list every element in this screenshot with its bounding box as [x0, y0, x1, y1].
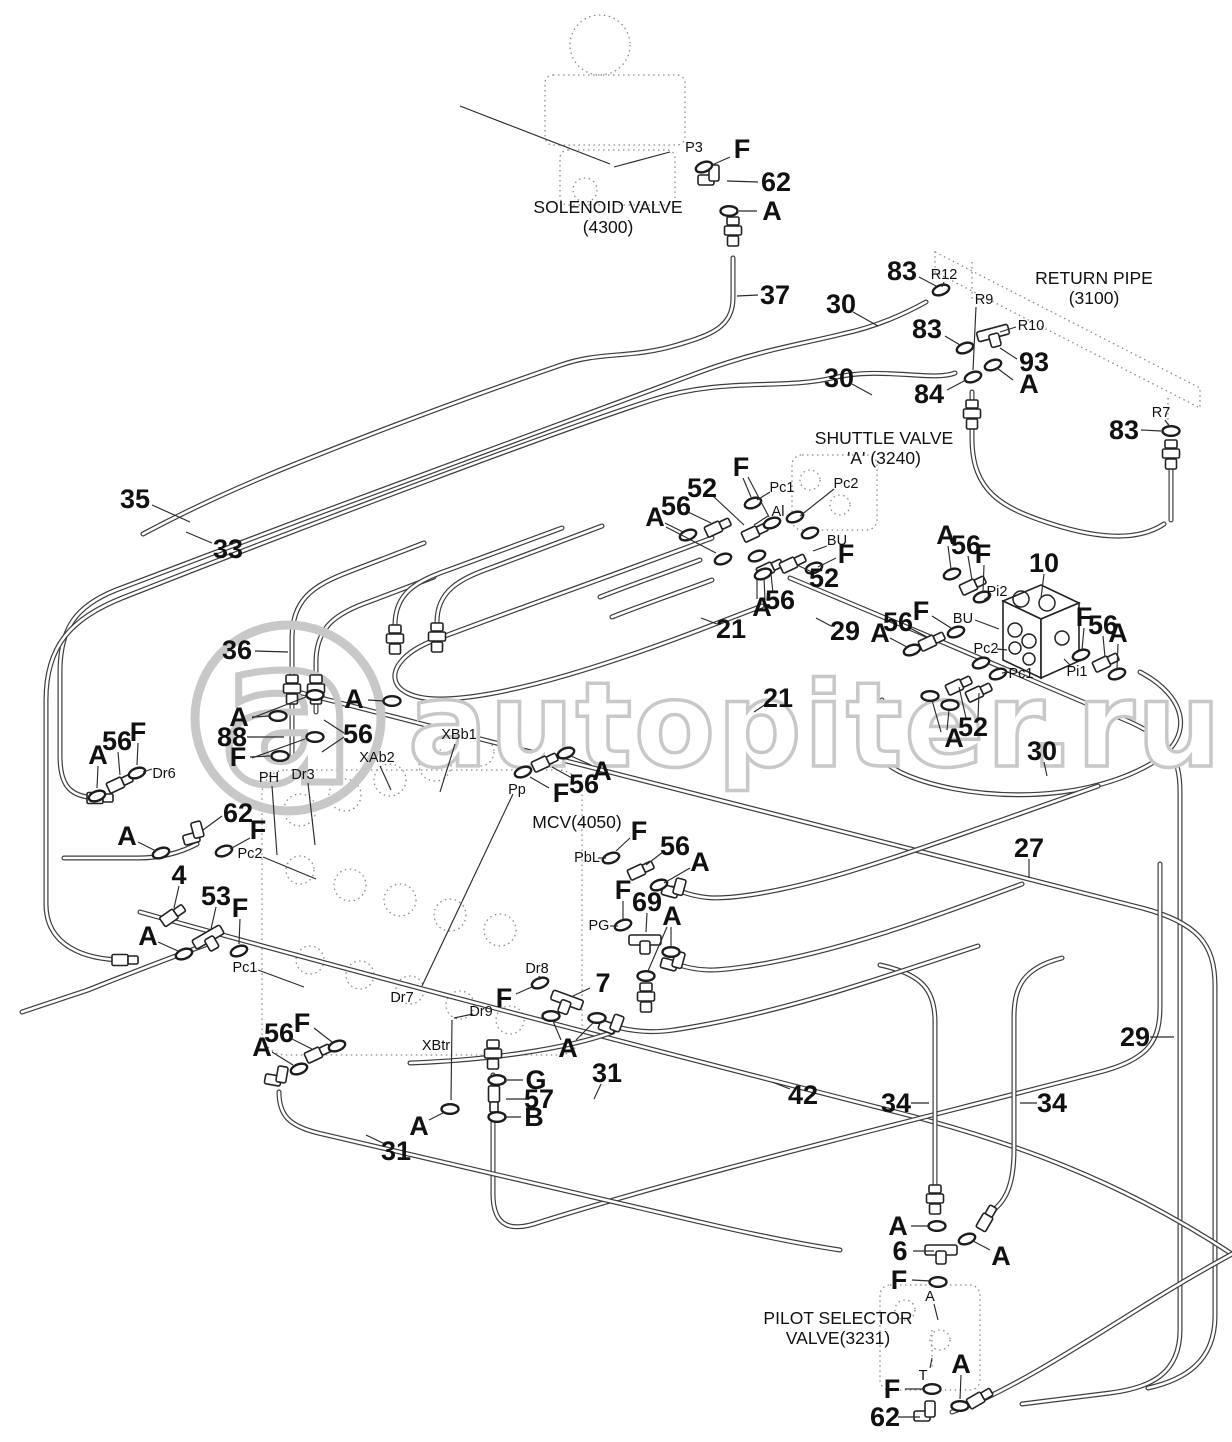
leader-line — [314, 1028, 332, 1042]
callout-6: 6 — [892, 1236, 907, 1266]
leader-line — [422, 794, 513, 986]
ferrule-mid — [638, 992, 655, 1001]
callout-A: A — [138, 921, 158, 951]
fitting-elbow — [180, 821, 205, 846]
port-label-Dr9: Dr9 — [469, 1004, 492, 1020]
leader-line — [973, 307, 976, 370]
callout-62: 62 — [870, 1402, 900, 1432]
port-label-XBb1: XBb1 — [441, 727, 476, 743]
o-ring — [174, 947, 193, 962]
leader-line — [429, 1112, 445, 1120]
callout-62: 62 — [761, 167, 791, 197]
callout-A: A — [762, 196, 782, 226]
callout-42: 42 — [788, 1080, 818, 1110]
callout-21: 21 — [716, 614, 746, 644]
fitting-tip — [794, 554, 806, 565]
fitting-tee — [976, 324, 1012, 351]
leader-line — [945, 336, 960, 345]
port-label-R9: R9 — [975, 292, 994, 308]
o-ring — [747, 549, 766, 564]
callout-7: 7 — [595, 968, 610, 998]
o-ring — [214, 844, 233, 859]
callout-29: 29 — [830, 616, 860, 646]
callout-30: 30 — [826, 289, 856, 319]
hose-outline — [880, 965, 935, 1192]
leader-line — [460, 106, 610, 164]
fitting-stack — [1163, 440, 1180, 469]
callout-34: 34 — [1037, 1088, 1067, 1118]
fitting-branch — [988, 333, 1001, 348]
component-label-solenoid-valve: (4300) — [583, 217, 634, 237]
callout-A: A — [870, 618, 890, 648]
ferrule-top — [640, 983, 652, 991]
o-ring — [638, 971, 655, 981]
port-label-Pc2: Pc2 — [974, 641, 999, 657]
callout-F: F — [232, 893, 249, 923]
component-label-shuttle-valve-a: SHUTTLE VALVE — [815, 428, 953, 448]
o-ring — [942, 700, 959, 710]
component-sketch-bore — [570, 15, 630, 75]
leader-line — [258, 970, 304, 987]
fitting-plug — [779, 553, 807, 574]
o-ring — [957, 1232, 976, 1247]
port-label-Pi1: Pi1 — [1067, 664, 1088, 680]
component-label-shuttle-valve-a: 'A' (3240) — [847, 448, 921, 468]
o-ring — [384, 696, 401, 706]
ferrule-mid — [927, 1194, 944, 1203]
leader-line — [158, 942, 178, 951]
o-ring — [955, 341, 974, 356]
callout-F: F — [734, 134, 751, 164]
o-ring — [929, 1221, 946, 1231]
callout-A: A — [409, 1111, 429, 1141]
callout-A: A — [951, 1349, 971, 1379]
ferrule-bottom — [1166, 459, 1177, 469]
callout-56: 56 — [102, 726, 132, 756]
callout-69: 69 — [632, 887, 662, 917]
piping-diagram-svg: aautopiter.ruF62A3730838393A843083353336… — [0, 0, 1232, 1442]
callout-52: 52 — [809, 563, 839, 593]
callout-B: B — [524, 1102, 544, 1132]
callout-31: 31 — [592, 1058, 622, 1088]
callout-F: F — [553, 778, 570, 808]
leader-line — [203, 816, 222, 830]
leader-line — [912, 1280, 931, 1281]
o-ring — [663, 947, 680, 957]
o-ring — [952, 1401, 969, 1411]
ferrule-mid — [725, 226, 742, 235]
port-label-Dr3: Dr3 — [291, 767, 314, 783]
component-sketch-bore — [484, 914, 516, 946]
port-label-PbL: PbL — [574, 850, 600, 866]
component-label-pilot-selector-valve: VALVE(3231) — [786, 1328, 890, 1348]
fitting-plug — [489, 1086, 500, 1112]
callout-A: A — [944, 723, 964, 753]
hose-core — [880, 965, 935, 1192]
port-label-PG: PG — [589, 918, 610, 934]
callout-A: A — [1019, 369, 1039, 399]
o-ring — [489, 1112, 506, 1122]
component-sketch-bore — [286, 856, 314, 884]
hose-core — [972, 392, 1164, 536]
o-ring — [924, 1384, 941, 1394]
leader-line — [853, 312, 878, 326]
ferrule-top — [966, 400, 978, 408]
ferrule-top — [727, 217, 739, 225]
ferrule-top — [389, 625, 401, 633]
callout-56: 56 — [660, 831, 690, 861]
ferrule-top — [929, 1185, 941, 1193]
leader-line — [263, 857, 316, 879]
callout-A: A — [645, 502, 665, 532]
component-sketch-bore — [334, 869, 366, 901]
port-label-BU: BU — [953, 611, 973, 627]
parts-diagram-canvas: aautopiter.ruF62A3730838393A843083353336… — [0, 0, 1232, 1442]
fitting-plug — [112, 955, 138, 966]
ferrule-top — [1165, 440, 1177, 448]
o-ring — [963, 370, 982, 385]
leader-line — [1000, 348, 1017, 359]
port-label-T: T — [919, 1368, 928, 1384]
leader-line — [712, 157, 730, 165]
o-ring — [589, 1013, 606, 1023]
port-label-Dr7: Dr7 — [390, 990, 413, 1006]
callout-F: F — [733, 452, 750, 482]
ferrule-mid — [964, 409, 981, 418]
leader-line — [737, 295, 758, 296]
callout-84: 84 — [914, 379, 944, 409]
port-label-Pc1: Pc1 — [233, 960, 258, 976]
component-label-return-pipe: (3100) — [1069, 288, 1120, 308]
o-ring — [800, 526, 819, 541]
port-label-R10: R10 — [1018, 318, 1045, 334]
leader-line — [516, 986, 534, 994]
leader-line — [975, 620, 999, 629]
leader-line — [614, 152, 670, 167]
port-label-Pc1: Pc1 — [1009, 666, 1034, 682]
o-ring — [785, 510, 804, 525]
leader-line — [451, 1020, 452, 1100]
component-sketch-bore — [384, 884, 416, 916]
callout-10: 10 — [1029, 548, 1059, 578]
callout-A: A — [662, 901, 682, 931]
callout-52: 52 — [687, 473, 717, 503]
leader-line — [186, 532, 212, 543]
leader-line — [997, 368, 1013, 380]
hose-core — [952, 1254, 1232, 1412]
port-label-XAb2: XAb2 — [359, 750, 394, 766]
ferrule-bottom — [967, 419, 978, 429]
callout-35: 35 — [120, 484, 150, 514]
callout-53: 53 — [201, 881, 231, 911]
callout-F: F — [250, 815, 267, 845]
o-ring — [930, 1277, 947, 1287]
callout-21: 21 — [763, 683, 793, 713]
ferrule-bottom — [930, 1204, 941, 1214]
fitting-tip — [974, 576, 986, 587]
fitting-plug — [704, 517, 732, 538]
o-ring — [713, 552, 732, 567]
callout-34: 34 — [881, 1088, 911, 1118]
port-label-Dr8: Dr8 — [525, 961, 548, 977]
o-ring — [272, 751, 289, 761]
fitting-tip — [925, 1401, 935, 1417]
fitting-stack — [638, 983, 655, 1012]
callout-F: F — [891, 1265, 908, 1295]
leader-line — [1141, 430, 1161, 431]
leader-line — [757, 492, 770, 500]
callout-F: F — [230, 742, 247, 772]
fitting-tee — [925, 1245, 957, 1264]
callout-F: F — [631, 816, 648, 846]
fitting-tip — [128, 956, 138, 964]
ferrule-bottom — [728, 236, 739, 246]
ferrule-mid — [387, 634, 404, 643]
o-ring — [307, 732, 324, 742]
port-label-Al: Al — [772, 504, 785, 520]
fitting-elbow — [914, 1401, 935, 1421]
component-label-pilot-selector-valve: PILOT SELECTOR — [763, 1308, 912, 1328]
callout-33: 33 — [213, 534, 243, 564]
callout-F: F — [294, 1008, 311, 1038]
port-label-R7: R7 — [1152, 405, 1171, 421]
callout-56: 56 — [661, 491, 691, 521]
port-label-BU: BU — [827, 533, 847, 549]
callout-27: 27 — [1014, 833, 1044, 863]
leader-line — [890, 638, 907, 647]
leader-line — [380, 766, 391, 790]
o-ring — [229, 944, 248, 959]
fitting-tip — [719, 518, 731, 529]
callout-56: 56 — [343, 719, 373, 749]
callout-A: A — [252, 1032, 272, 1062]
component-label-return-pipe: RETURN PIPE — [1035, 268, 1153, 288]
leader-line — [813, 546, 827, 551]
o-ring — [922, 691, 939, 701]
ferrule-bottom — [390, 644, 401, 654]
callout-4: 4 — [171, 860, 186, 890]
port-label-A: A — [925, 1289, 935, 1305]
leader-line — [983, 565, 984, 592]
fitting-plug — [976, 1204, 999, 1232]
callout-A: A — [344, 684, 364, 714]
ferrule-bottom — [641, 1002, 652, 1012]
ferrule-top — [286, 675, 298, 683]
callout-F: F — [130, 717, 147, 747]
ferrule-bottom — [432, 642, 443, 652]
port-label-Pc2: Pc2 — [238, 846, 263, 862]
callout-F: F — [975, 539, 992, 569]
leader-line — [138, 842, 156, 851]
ferrule-bottom — [488, 1059, 499, 1069]
callout-A: A — [690, 847, 710, 877]
hose-outline — [143, 258, 733, 534]
leader-line — [727, 181, 758, 182]
o-ring — [151, 846, 170, 861]
fitting-body — [489, 1086, 500, 1102]
ferrule-top — [431, 623, 443, 631]
hose-outline — [972, 392, 1164, 536]
fitting-plug — [304, 1043, 332, 1064]
port-label-Dr6: Dr6 — [152, 766, 175, 782]
component-label-mcv: MCV(4050) — [532, 812, 621, 832]
component-sketch-bore — [800, 470, 820, 490]
o-ring — [289, 1062, 308, 1077]
port-label-P3: P3 — [685, 140, 703, 156]
o-ring — [307, 690, 324, 700]
ferrule-top — [487, 1040, 499, 1048]
o-ring — [1163, 426, 1180, 436]
component-sketch-bore — [374, 764, 406, 796]
port-label-XBtr: XBtr — [422, 1038, 450, 1054]
ferrule-mid — [284, 684, 301, 693]
callout-A: A — [592, 756, 612, 786]
port-label-PH: PH — [259, 770, 279, 786]
fitting-stack — [485, 1040, 502, 1069]
callout-A: A — [117, 821, 137, 851]
callout-83: 83 — [912, 314, 942, 344]
callout-A: A — [1108, 618, 1128, 648]
leader-line — [816, 618, 831, 626]
component-sketch-outline — [545, 75, 685, 145]
leader-line — [973, 1241, 990, 1250]
fitting-tip — [490, 1102, 498, 1112]
callout-62: 62 — [223, 798, 253, 828]
port-label-Pc2: Pc2 — [834, 476, 859, 492]
o-ring — [127, 766, 146, 781]
callout-36: 36 — [222, 635, 252, 665]
o-ring — [489, 1075, 506, 1085]
fitting-stack — [387, 625, 404, 654]
callout-83: 83 — [1109, 415, 1139, 445]
callout-29: 29 — [1120, 1022, 1150, 1052]
leader-line — [688, 512, 711, 523]
o-ring — [721, 206, 738, 216]
o-ring — [942, 567, 961, 582]
port-label-Pp: Pp — [508, 782, 526, 798]
o-ring — [543, 1011, 560, 1021]
leader-line — [932, 616, 951, 628]
ferrule-top — [310, 675, 322, 683]
callout-F: F — [913, 596, 930, 626]
o-ring — [270, 711, 287, 721]
fitting-elbow — [264, 1064, 288, 1087]
fitting-stack — [429, 623, 446, 652]
leader-line — [934, 1304, 938, 1320]
component-sketch-bore — [830, 495, 850, 515]
callout-F: F — [496, 983, 513, 1013]
leader-line — [800, 489, 834, 516]
callout-83: 83 — [887, 256, 917, 286]
fitting-branch — [936, 1251, 946, 1264]
fitting-body — [112, 955, 128, 966]
hose-outline — [279, 1092, 840, 1250]
leader-line — [852, 384, 872, 395]
fitting-stack — [964, 400, 981, 429]
hose-outline — [140, 912, 1232, 1254]
fitting-tip — [276, 1066, 289, 1083]
ferrule-mid — [1163, 449, 1180, 458]
callout-31: 31 — [381, 1136, 411, 1166]
leader-line — [748, 477, 769, 517]
callout-A: A — [991, 1241, 1011, 1271]
component-sketch-bore — [930, 1330, 950, 1350]
leader-line — [947, 380, 966, 390]
leader-line — [616, 838, 630, 851]
fitting-stack — [927, 1185, 944, 1214]
callout-30: 30 — [824, 363, 854, 393]
callout-F: F — [615, 875, 632, 905]
callout-F: F — [884, 1374, 901, 1404]
fitting-stack — [725, 217, 742, 246]
callout-A: A — [752, 592, 772, 622]
port-label-Pi2: Pi2 — [987, 584, 1008, 600]
callout-37: 37 — [760, 280, 790, 310]
leader-line — [701, 618, 717, 624]
hose-core — [140, 912, 1232, 1254]
leader-line — [272, 1052, 293, 1065]
hose-core — [279, 1092, 840, 1250]
port-label-Pc1: Pc1 — [770, 480, 795, 496]
fitting-branch — [640, 941, 650, 954]
ferrule-mid — [485, 1049, 502, 1058]
callout-A: A — [558, 1033, 578, 1063]
port-label-R12: R12 — [931, 267, 958, 283]
component-label-solenoid-valve: SOLENOID VALVE — [533, 197, 682, 217]
ferrule-mid — [429, 632, 446, 641]
callout-30: 30 — [1027, 736, 1057, 766]
